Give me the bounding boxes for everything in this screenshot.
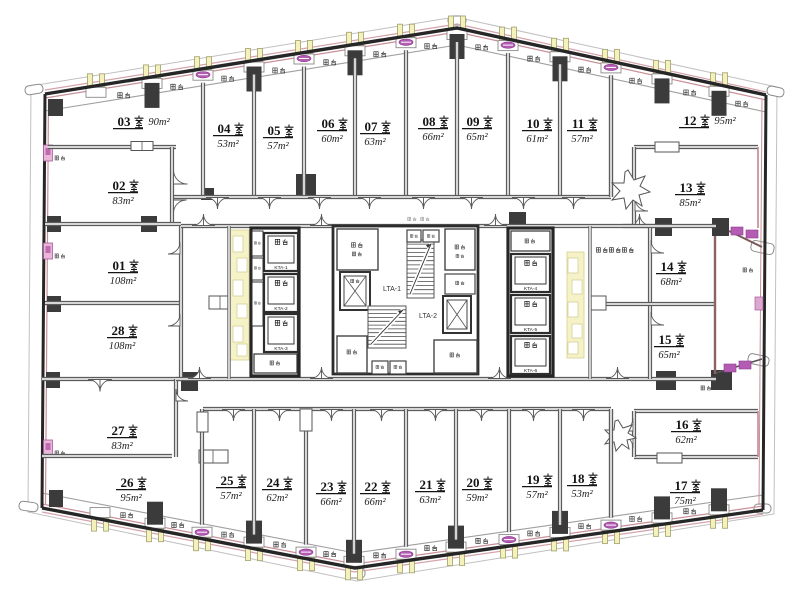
svg-text:23: 23	[321, 479, 335, 494]
svg-text:09: 09	[467, 114, 481, 129]
svg-text:95m²: 95m²	[714, 116, 736, 127]
svg-text:57m²: 57m²	[571, 134, 593, 145]
svg-text:53m²: 53m²	[217, 139, 239, 150]
svg-text:04: 04	[218, 121, 232, 136]
svg-text:61m²: 61m²	[526, 134, 548, 145]
svg-text:LTA-2: LTA-2	[419, 313, 437, 320]
svg-text:KTA-4: KTA-4	[524, 286, 538, 292]
svg-text:62m²: 62m²	[266, 493, 288, 504]
svg-text:01: 01	[113, 258, 126, 273]
svg-text:KTA-6: KTA-6	[524, 368, 538, 374]
svg-text:KTA-5: KTA-5	[524, 327, 538, 333]
svg-text:02: 02	[113, 178, 126, 193]
svg-text:13: 13	[680, 180, 694, 195]
svg-text:83m²: 83m²	[112, 196, 134, 207]
svg-text:11: 11	[572, 116, 584, 131]
svg-text:24: 24	[267, 475, 281, 490]
svg-text:62m²: 62m²	[675, 435, 697, 446]
svg-text:68m²: 68m²	[660, 277, 682, 288]
svg-text:57m²: 57m²	[220, 491, 242, 502]
svg-text:90m²: 90m²	[148, 117, 170, 128]
svg-text:65m²: 65m²	[658, 350, 680, 361]
svg-text:16: 16	[676, 417, 690, 432]
svg-text:108m²: 108m²	[109, 341, 136, 352]
svg-text:66m²: 66m²	[364, 497, 386, 508]
svg-text:59m²: 59m²	[466, 493, 488, 504]
svg-text:12: 12	[684, 113, 697, 128]
svg-text:18: 18	[572, 471, 586, 486]
svg-text:57m²: 57m²	[267, 141, 289, 152]
svg-text:06: 06	[322, 116, 336, 131]
svg-text:KTA-1: KTA-1	[274, 265, 288, 271]
svg-text:19: 19	[527, 472, 541, 487]
svg-text:75m²: 75m²	[674, 496, 696, 507]
svg-text:KTA-3: KTA-3	[274, 346, 288, 352]
svg-text:05: 05	[268, 123, 282, 138]
svg-text:KTA-2: KTA-2	[274, 306, 288, 312]
svg-text:65m²: 65m²	[466, 132, 488, 143]
svg-text:83m²: 83m²	[111, 441, 133, 452]
svg-text:85m²: 85m²	[679, 198, 701, 209]
svg-text:28: 28	[112, 323, 126, 338]
svg-text:95m²: 95m²	[120, 493, 142, 504]
svg-text:21: 21	[420, 477, 433, 492]
svg-text:66m²: 66m²	[320, 497, 342, 508]
svg-text:14: 14	[661, 259, 675, 274]
svg-text:15: 15	[659, 332, 673, 347]
svg-text:17: 17	[675, 478, 689, 493]
svg-text:22: 22	[365, 479, 378, 494]
svg-text:08: 08	[423, 114, 437, 129]
svg-text:108m²: 108m²	[110, 276, 137, 287]
svg-text:03: 03	[118, 114, 132, 129]
svg-text:07: 07	[365, 119, 379, 134]
svg-text:57m²: 57m²	[526, 490, 548, 501]
svg-text:LTA-1: LTA-1	[383, 286, 401, 293]
svg-text:26: 26	[121, 475, 135, 490]
svg-text:27: 27	[112, 423, 126, 438]
svg-text:10: 10	[527, 116, 540, 131]
svg-text:66m²: 66m²	[422, 132, 444, 143]
svg-text:60m²: 60m²	[321, 134, 343, 145]
svg-text:20: 20	[467, 475, 480, 490]
svg-text:63m²: 63m²	[364, 137, 386, 148]
svg-text:63m²: 63m²	[419, 495, 441, 506]
svg-text:25: 25	[221, 473, 235, 488]
svg-text:53m²: 53m²	[571, 489, 593, 500]
